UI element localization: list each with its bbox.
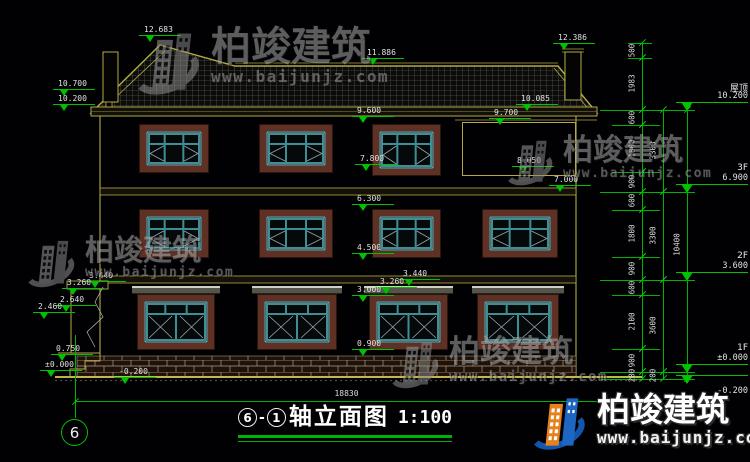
- elevation-value: -0.200: [114, 368, 156, 376]
- elevation-value: 4.500: [352, 244, 394, 252]
- floor-label: 2F: [676, 251, 748, 261]
- floor-label: 1F: [676, 343, 748, 353]
- elevation-marker: 9.600: [352, 107, 394, 123]
- watermark-url: www.baijunjz.com: [563, 167, 712, 182]
- elevation-marker: 10.200: [53, 95, 95, 111]
- elevation-marker: 7.800: [355, 155, 397, 171]
- dimension-line: [663, 280, 664, 372]
- elevation-marker: ±0.000: [40, 361, 82, 377]
- axis-circle-to: 1: [267, 408, 286, 427]
- level-triangle-icon: [40, 313, 48, 319]
- dimension-value: 2100: [628, 300, 637, 344]
- brand-building-icon: [527, 393, 589, 459]
- window: [140, 125, 208, 172]
- floor-elevation-value: 3.600: [676, 261, 748, 271]
- elevation-marker: 6.300: [352, 195, 394, 211]
- dimension-line: [642, 295, 643, 349]
- elevation-marker: 9.700: [489, 109, 531, 125]
- level-triangle-icon: [496, 119, 504, 125]
- level-triangle-icon: [60, 105, 68, 111]
- elevation-marker: 0.750: [51, 345, 93, 361]
- window: [138, 295, 214, 349]
- brand-building-icon: [386, 337, 442, 396]
- level-triangle-icon: [47, 371, 55, 377]
- level-triangle-icon: [560, 44, 568, 50]
- elevation-marker: 2.460: [33, 303, 75, 319]
- level-triangle-icon: [359, 296, 367, 302]
- watermark-brand: 柏竣建筑: [563, 136, 712, 167]
- dimension-value: 18830: [317, 389, 377, 398]
- dimension-value: 3300: [649, 214, 658, 258]
- elevation-value: 3.440: [398, 270, 440, 278]
- elevation-value: 10.085: [516, 95, 558, 103]
- watermark-brand: 柏竣建筑: [449, 337, 608, 369]
- dimension-line: [642, 210, 643, 257]
- level-triangle-icon: [359, 350, 367, 356]
- window-cornice: [252, 286, 342, 294]
- watermark: 柏竣建筑www.baijunjz.com: [502, 136, 712, 193]
- window-cornice: [472, 286, 564, 294]
- window: [260, 210, 332, 257]
- elevation-value: 10.200: [53, 95, 95, 103]
- level-triangle-icon: [121, 378, 129, 384]
- logo-brand: 柏竣建筑: [597, 393, 750, 428]
- level-triangle-icon: [359, 205, 367, 211]
- elevation-value: 12.386: [553, 34, 595, 42]
- elevation-value: 9.600: [352, 107, 394, 115]
- title-underline-thin: [238, 441, 452, 442]
- level-triangle-icon: [681, 272, 693, 281]
- title-underline-thick: [238, 435, 452, 438]
- watermark-brand: 柏竣建筑: [85, 236, 234, 266]
- watermark: 柏竣建筑www.baijunjz.com: [386, 337, 608, 396]
- title-text: 轴立面图: [289, 406, 389, 429]
- elevation-value: 9.700: [489, 109, 531, 117]
- elevation-value: 2.460: [33, 303, 75, 311]
- elevation-value: 7.800: [355, 155, 397, 163]
- brand-building-icon: [22, 236, 78, 295]
- level-triangle-icon: [359, 254, 367, 260]
- watermark: 柏竣建筑www.baijunjz.com: [22, 236, 234, 295]
- axis-bubble-6: 6: [61, 419, 88, 446]
- axis-circle-from: 6: [238, 408, 257, 427]
- elevation-value: 3.000: [352, 286, 394, 294]
- drawing-title: 6 - 1 轴立面图 1:100: [238, 406, 452, 429]
- level-triangle-icon: [359, 117, 367, 123]
- watermark-url: www.baijunjz.com: [211, 68, 389, 86]
- brand-building-icon: [502, 136, 556, 193]
- cad-elevation-drawing: 6 - 1 轴立面图 1:100 6 12.68311.88612.38610.…: [0, 0, 750, 462]
- dimension-line: [663, 192, 664, 280]
- elevation-marker: 12.386: [553, 34, 595, 50]
- left-chimney: [103, 52, 118, 102]
- floor-elevation-value: 10.200: [676, 91, 748, 101]
- dimension-value: 3600: [649, 304, 658, 348]
- watermark: 柏竣建筑www.baijunjz.com: [130, 27, 389, 105]
- right-chimney: [565, 52, 581, 100]
- elevation-value: 6.300: [352, 195, 394, 203]
- elevation-marker: -0.200: [114, 368, 156, 384]
- elevation-value: 10.700: [53, 80, 95, 88]
- title-scale: 1:100: [398, 407, 452, 428]
- elevation-marker: 3.000: [352, 286, 394, 302]
- level-triangle-icon: [362, 165, 370, 171]
- elevation-value: 0.750: [51, 345, 93, 353]
- watermark-url: www.baijunjz.com: [85, 266, 234, 281]
- title-separator: -: [259, 410, 265, 426]
- brand-building-icon: [130, 27, 204, 105]
- brand-logo: 柏竣建筑www.baijunjz.com: [527, 393, 750, 459]
- watermark-url: www.baijunjz.com: [449, 369, 608, 385]
- window: [258, 295, 336, 349]
- level-triangle-icon: [681, 102, 693, 111]
- level-triangle-icon: [681, 364, 693, 373]
- floor-elevation-value: ±0.000: [676, 353, 748, 363]
- level-triangle-icon: [681, 375, 693, 384]
- elevation-value: ±0.000: [40, 361, 82, 369]
- elevation-value: 3.260: [375, 278, 417, 286]
- logo-url: www.baijunjz.com: [597, 428, 750, 447]
- dimension-line: [642, 58, 643, 110]
- elevation-marker: 4.500: [352, 244, 394, 260]
- watermark-brand: 柏竣建筑: [211, 27, 389, 68]
- window: [260, 125, 332, 172]
- window: [483, 210, 557, 257]
